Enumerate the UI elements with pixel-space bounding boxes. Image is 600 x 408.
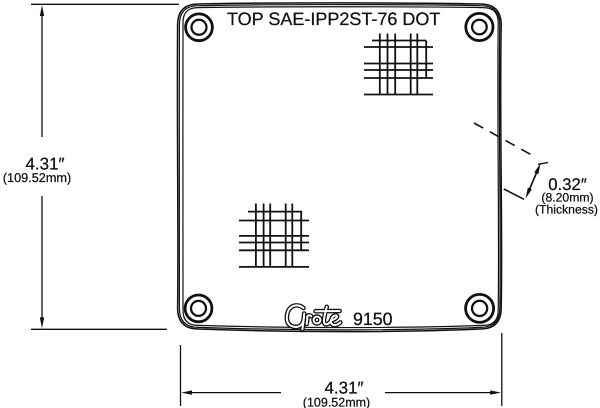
svg-text:9150: 9150 bbox=[353, 309, 393, 329]
svg-text:(109.52mm): (109.52mm) bbox=[303, 395, 370, 408]
svg-text:(109.52mm): (109.52mm) bbox=[3, 171, 71, 185]
svg-text:(Thickness): (Thickness) bbox=[535, 203, 598, 217]
svg-text:TOP SAE-IPP2ST-76 DOT: TOP SAE-IPP2ST-76 DOT bbox=[227, 9, 440, 29]
